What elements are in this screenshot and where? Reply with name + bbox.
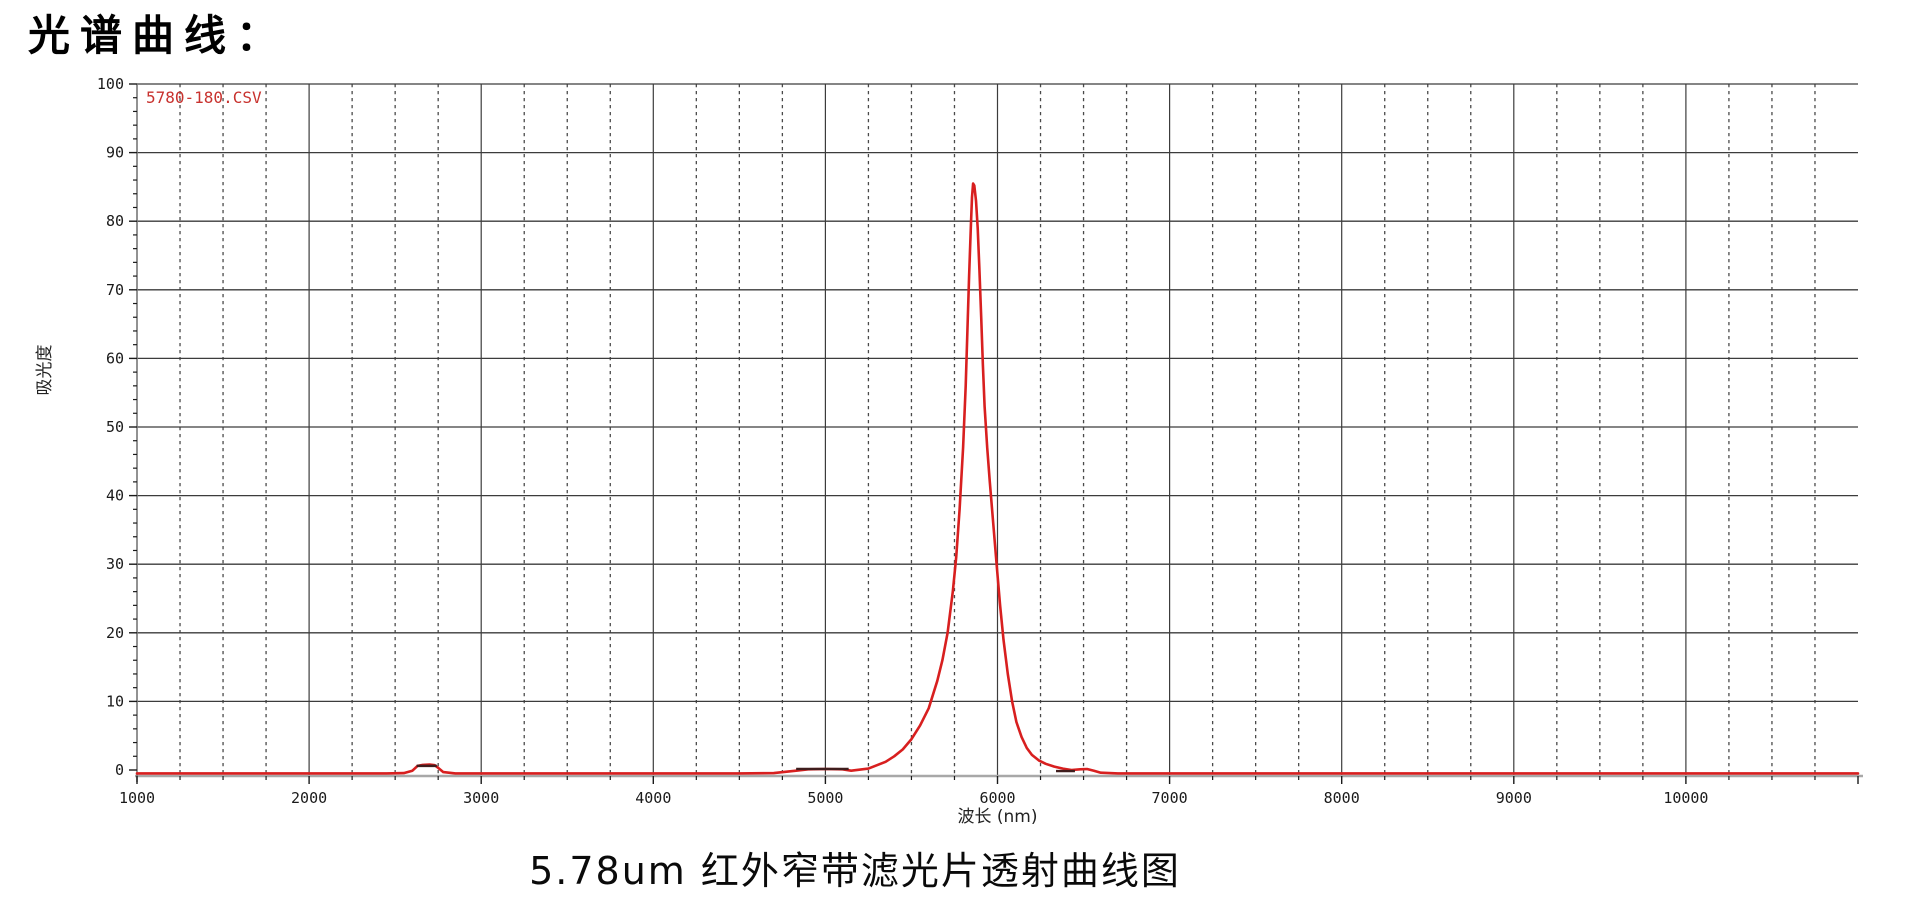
y-tick-label: 90 xyxy=(106,144,124,162)
x-tick-label: 8000 xyxy=(1324,789,1360,807)
report-page: 光谱曲线： 0102030405060708090100100020003000… xyxy=(0,0,1920,916)
spectral-chart: 0102030405060708090100100020003000400050… xyxy=(0,0,1920,916)
grid-lines xyxy=(137,84,1858,776)
chart-labels: 吸光度波长 (nm)5780-180.CSV xyxy=(35,88,1038,827)
y-tick-label: 40 xyxy=(106,487,124,505)
y-tick-label: 10 xyxy=(106,692,124,710)
chart-caption: 5.78um 红外窄带滤光片透射曲线图 xyxy=(0,840,1710,895)
x-tick-label: 1000 xyxy=(119,789,155,807)
x-tick-label: 4000 xyxy=(635,789,671,807)
y-tick-label: 70 xyxy=(106,281,124,299)
y-tick-label: 0 xyxy=(115,761,124,779)
legend-label: 5780-180.CSV xyxy=(146,88,262,107)
y-tick-label: 100 xyxy=(97,75,124,93)
axes xyxy=(135,84,1863,782)
y-tick-label: 80 xyxy=(106,212,124,230)
x-tick-label: 2000 xyxy=(291,789,327,807)
y-tick-label: 20 xyxy=(106,624,124,642)
baseline-dark-segments xyxy=(417,766,1075,771)
tick-marks: 0102030405060708090100100020003000400050… xyxy=(97,75,1858,807)
x-tick-label: 10000 xyxy=(1663,789,1708,807)
x-tick-label: 6000 xyxy=(979,789,1015,807)
y-tick-label: 60 xyxy=(106,349,124,367)
y-tick-label: 30 xyxy=(106,555,124,573)
x-tick-label: 5000 xyxy=(807,789,843,807)
x-axis-label: 波长 (nm) xyxy=(957,807,1037,827)
y-axis-label: 吸光度 xyxy=(35,345,55,396)
x-tick-label: 9000 xyxy=(1496,789,1532,807)
y-tick-label: 50 xyxy=(106,418,124,436)
x-tick-label: 7000 xyxy=(1152,789,1188,807)
x-tick-label: 3000 xyxy=(463,789,499,807)
